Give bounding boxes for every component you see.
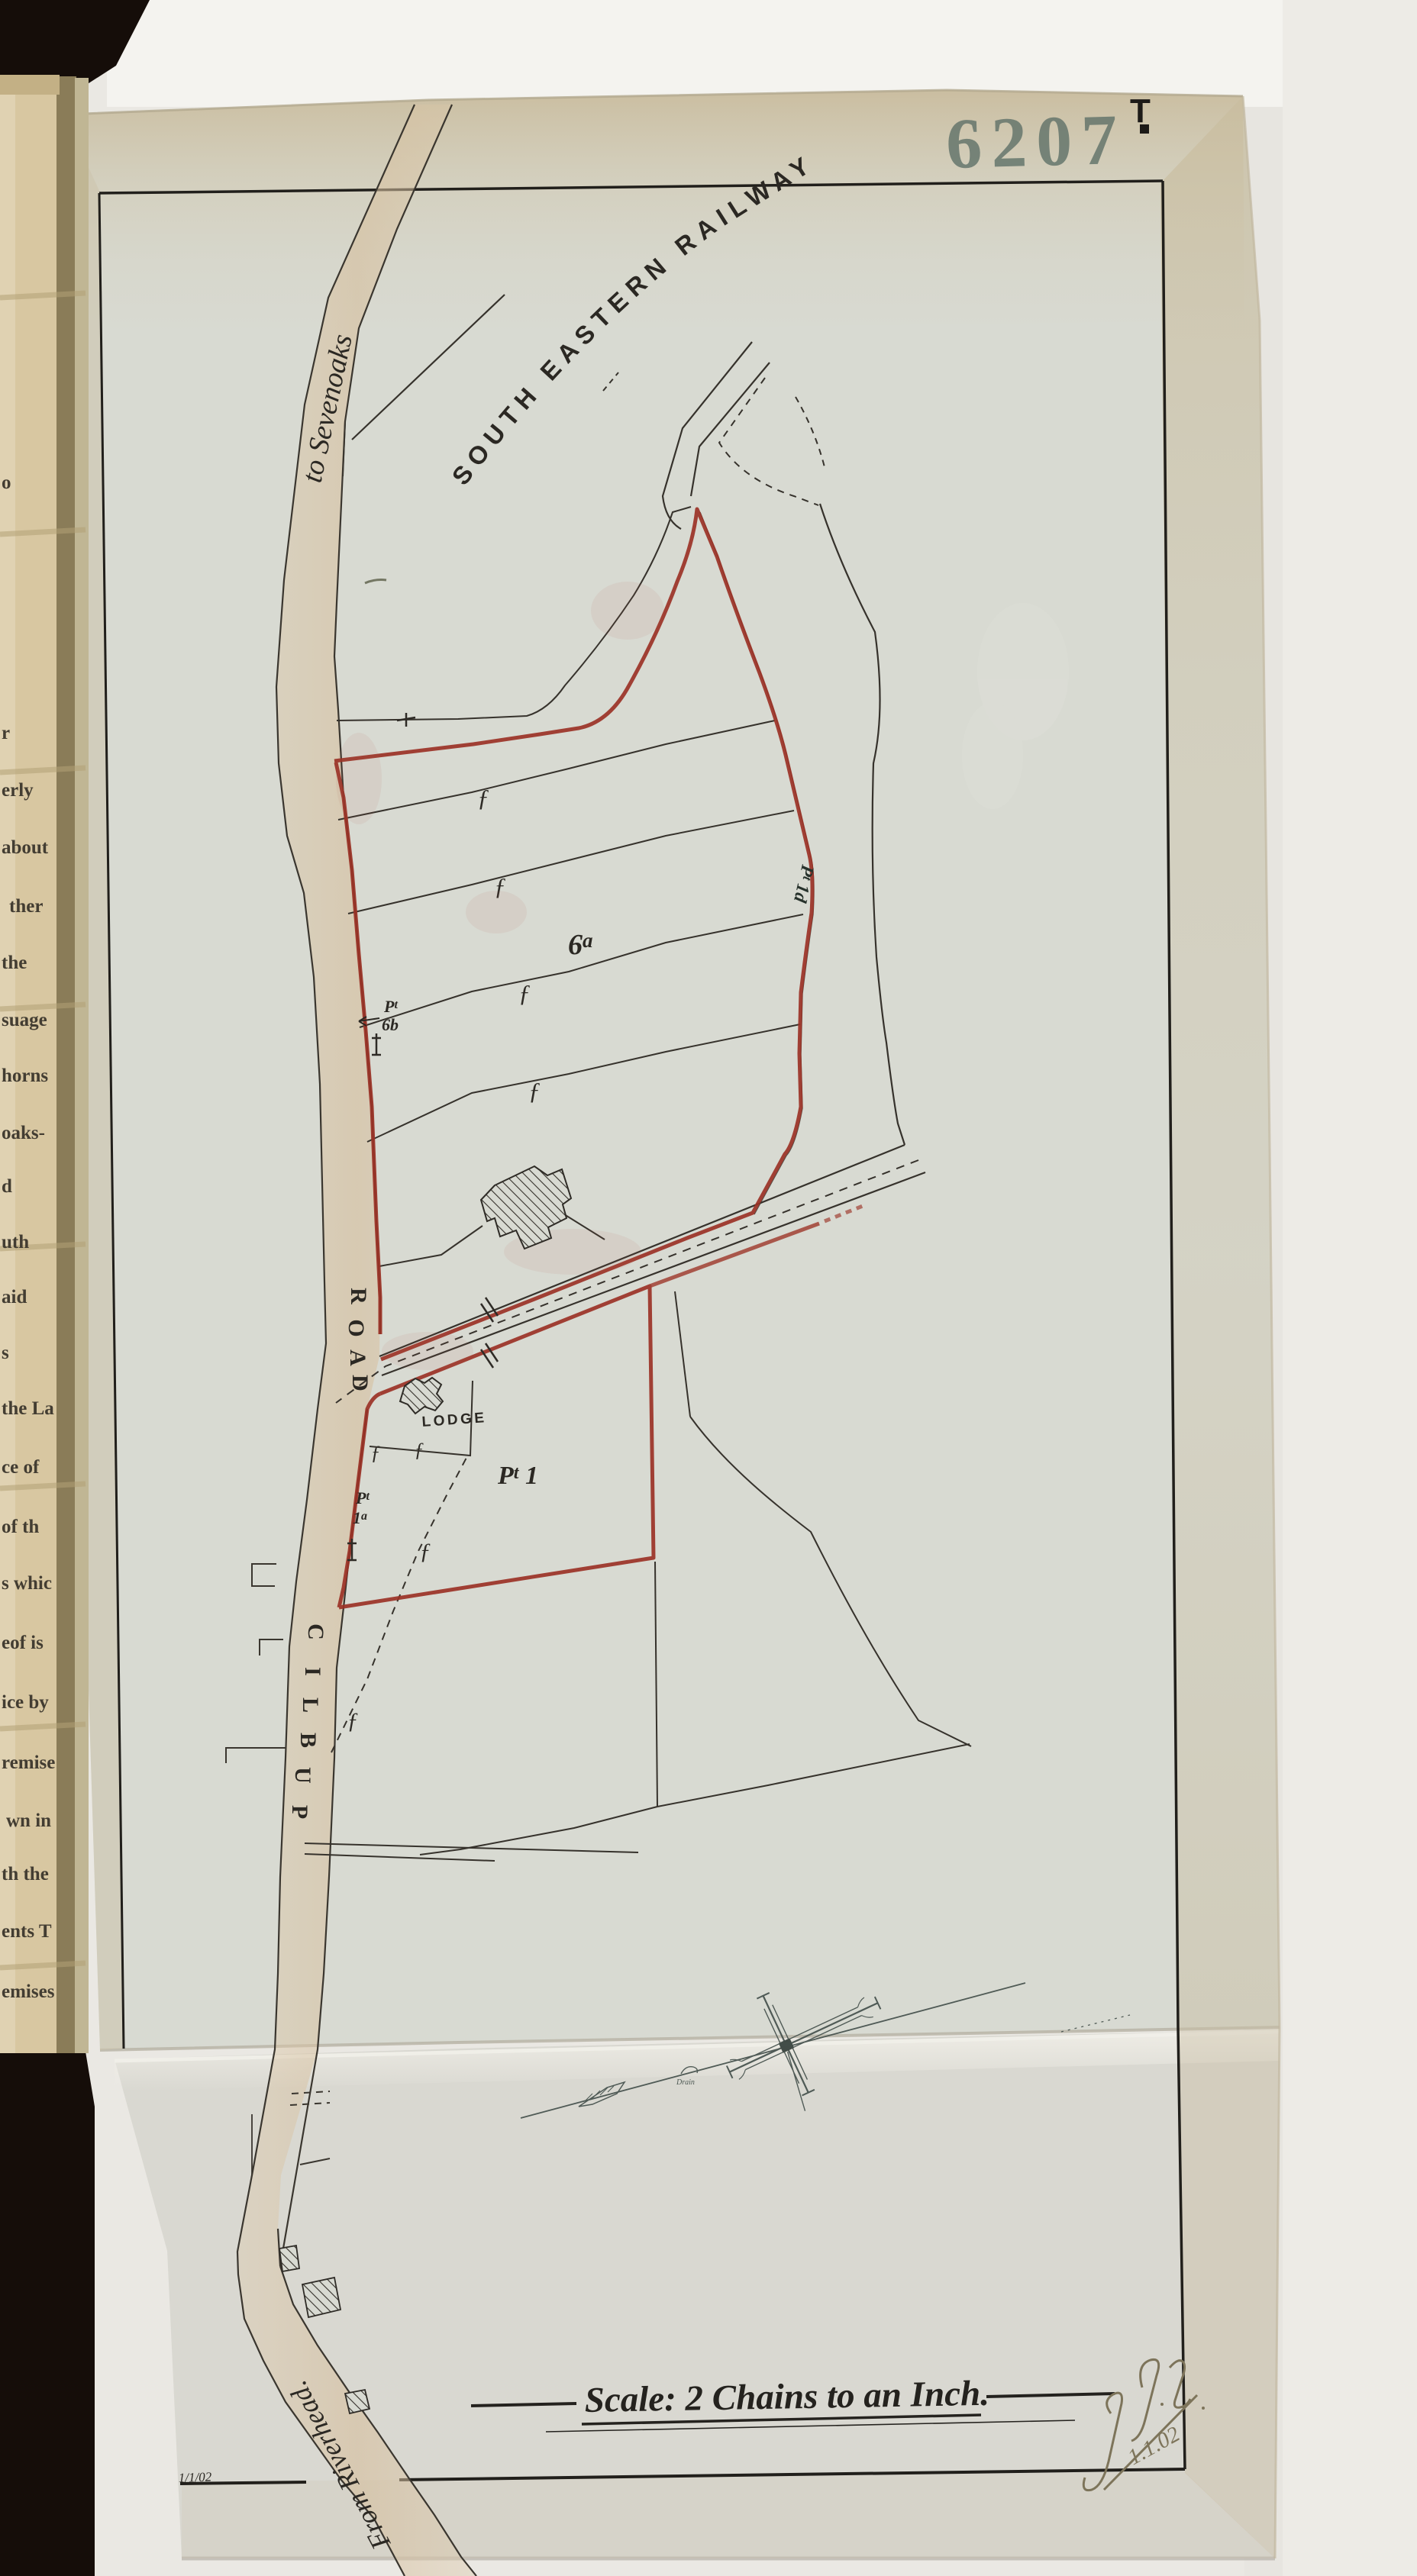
svg-text:ƒ: ƒ: [477, 784, 489, 811]
svg-text:s: s: [2, 1343, 9, 1363]
svg-text:Drain: Drain: [676, 2078, 695, 2087]
svg-text:ther: ther: [9, 896, 43, 917]
svg-text:o: o: [2, 472, 11, 493]
svg-text:ƒ: ƒ: [371, 1442, 381, 1464]
svg-text:U: U: [290, 1767, 315, 1784]
svg-text:B: B: [295, 1733, 321, 1748]
svg-text:ƒ: ƒ: [528, 1077, 541, 1104]
svg-text:horns: horns: [2, 1066, 48, 1086]
svg-text:uth: uth: [2, 1232, 29, 1253]
svg-text:P: P: [287, 1805, 312, 1819]
svg-text:erly: erly: [2, 780, 34, 801]
svg-text:s whic: s whic: [2, 1573, 52, 1594]
svg-text:O: O: [344, 1319, 369, 1336]
svg-text:A: A: [345, 1349, 370, 1366]
svg-text:D: D: [347, 1375, 373, 1391]
svg-text:Scale: 2 Chains to an Inch.: Scale: 2 Chains to an Inch.: [584, 2374, 989, 2420]
svg-text:1/1/02: 1/1/02: [178, 2469, 212, 2485]
svg-text:T: T: [1130, 92, 1151, 130]
svg-text:about: about: [2, 837, 49, 858]
svg-text:eof is: eof is: [2, 1633, 44, 1653]
svg-text:emises: emises: [2, 1981, 55, 2002]
svg-text:of th: of th: [2, 1517, 39, 1537]
svg-text:ƒ: ƒ: [420, 1539, 431, 1564]
svg-text:the La: the La: [2, 1398, 54, 1419]
svg-text:remise: remise: [2, 1752, 55, 1773]
svg-text:suage: suage: [2, 1010, 47, 1030]
svg-text:6b: 6b: [382, 1015, 399, 1034]
svg-text:C: C: [303, 1623, 328, 1640]
svg-text:r: r: [2, 723, 10, 743]
svg-text:oaks-: oaks-: [2, 1123, 45, 1143]
svg-text:I: I: [300, 1667, 325, 1676]
svg-text:ice by: ice by: [2, 1692, 49, 1713]
svg-text:aid: aid: [2, 1287, 27, 1307]
svg-text:ents T: ents T: [2, 1921, 52, 1942]
svg-text:the: the: [2, 953, 27, 973]
svg-text:d: d: [2, 1176, 12, 1197]
svg-text:th the: th the: [2, 1864, 49, 1884]
svg-text:6207: 6207: [945, 100, 1128, 184]
svg-text:ƒ: ƒ: [347, 1708, 359, 1733]
svg-text:ce of: ce of: [2, 1457, 40, 1478]
svg-text:R: R: [346, 1288, 371, 1304]
svg-text:L: L: [298, 1697, 323, 1713]
svg-text:wn in: wn in: [6, 1810, 51, 1831]
svg-text:ƒ: ƒ: [518, 979, 531, 1007]
